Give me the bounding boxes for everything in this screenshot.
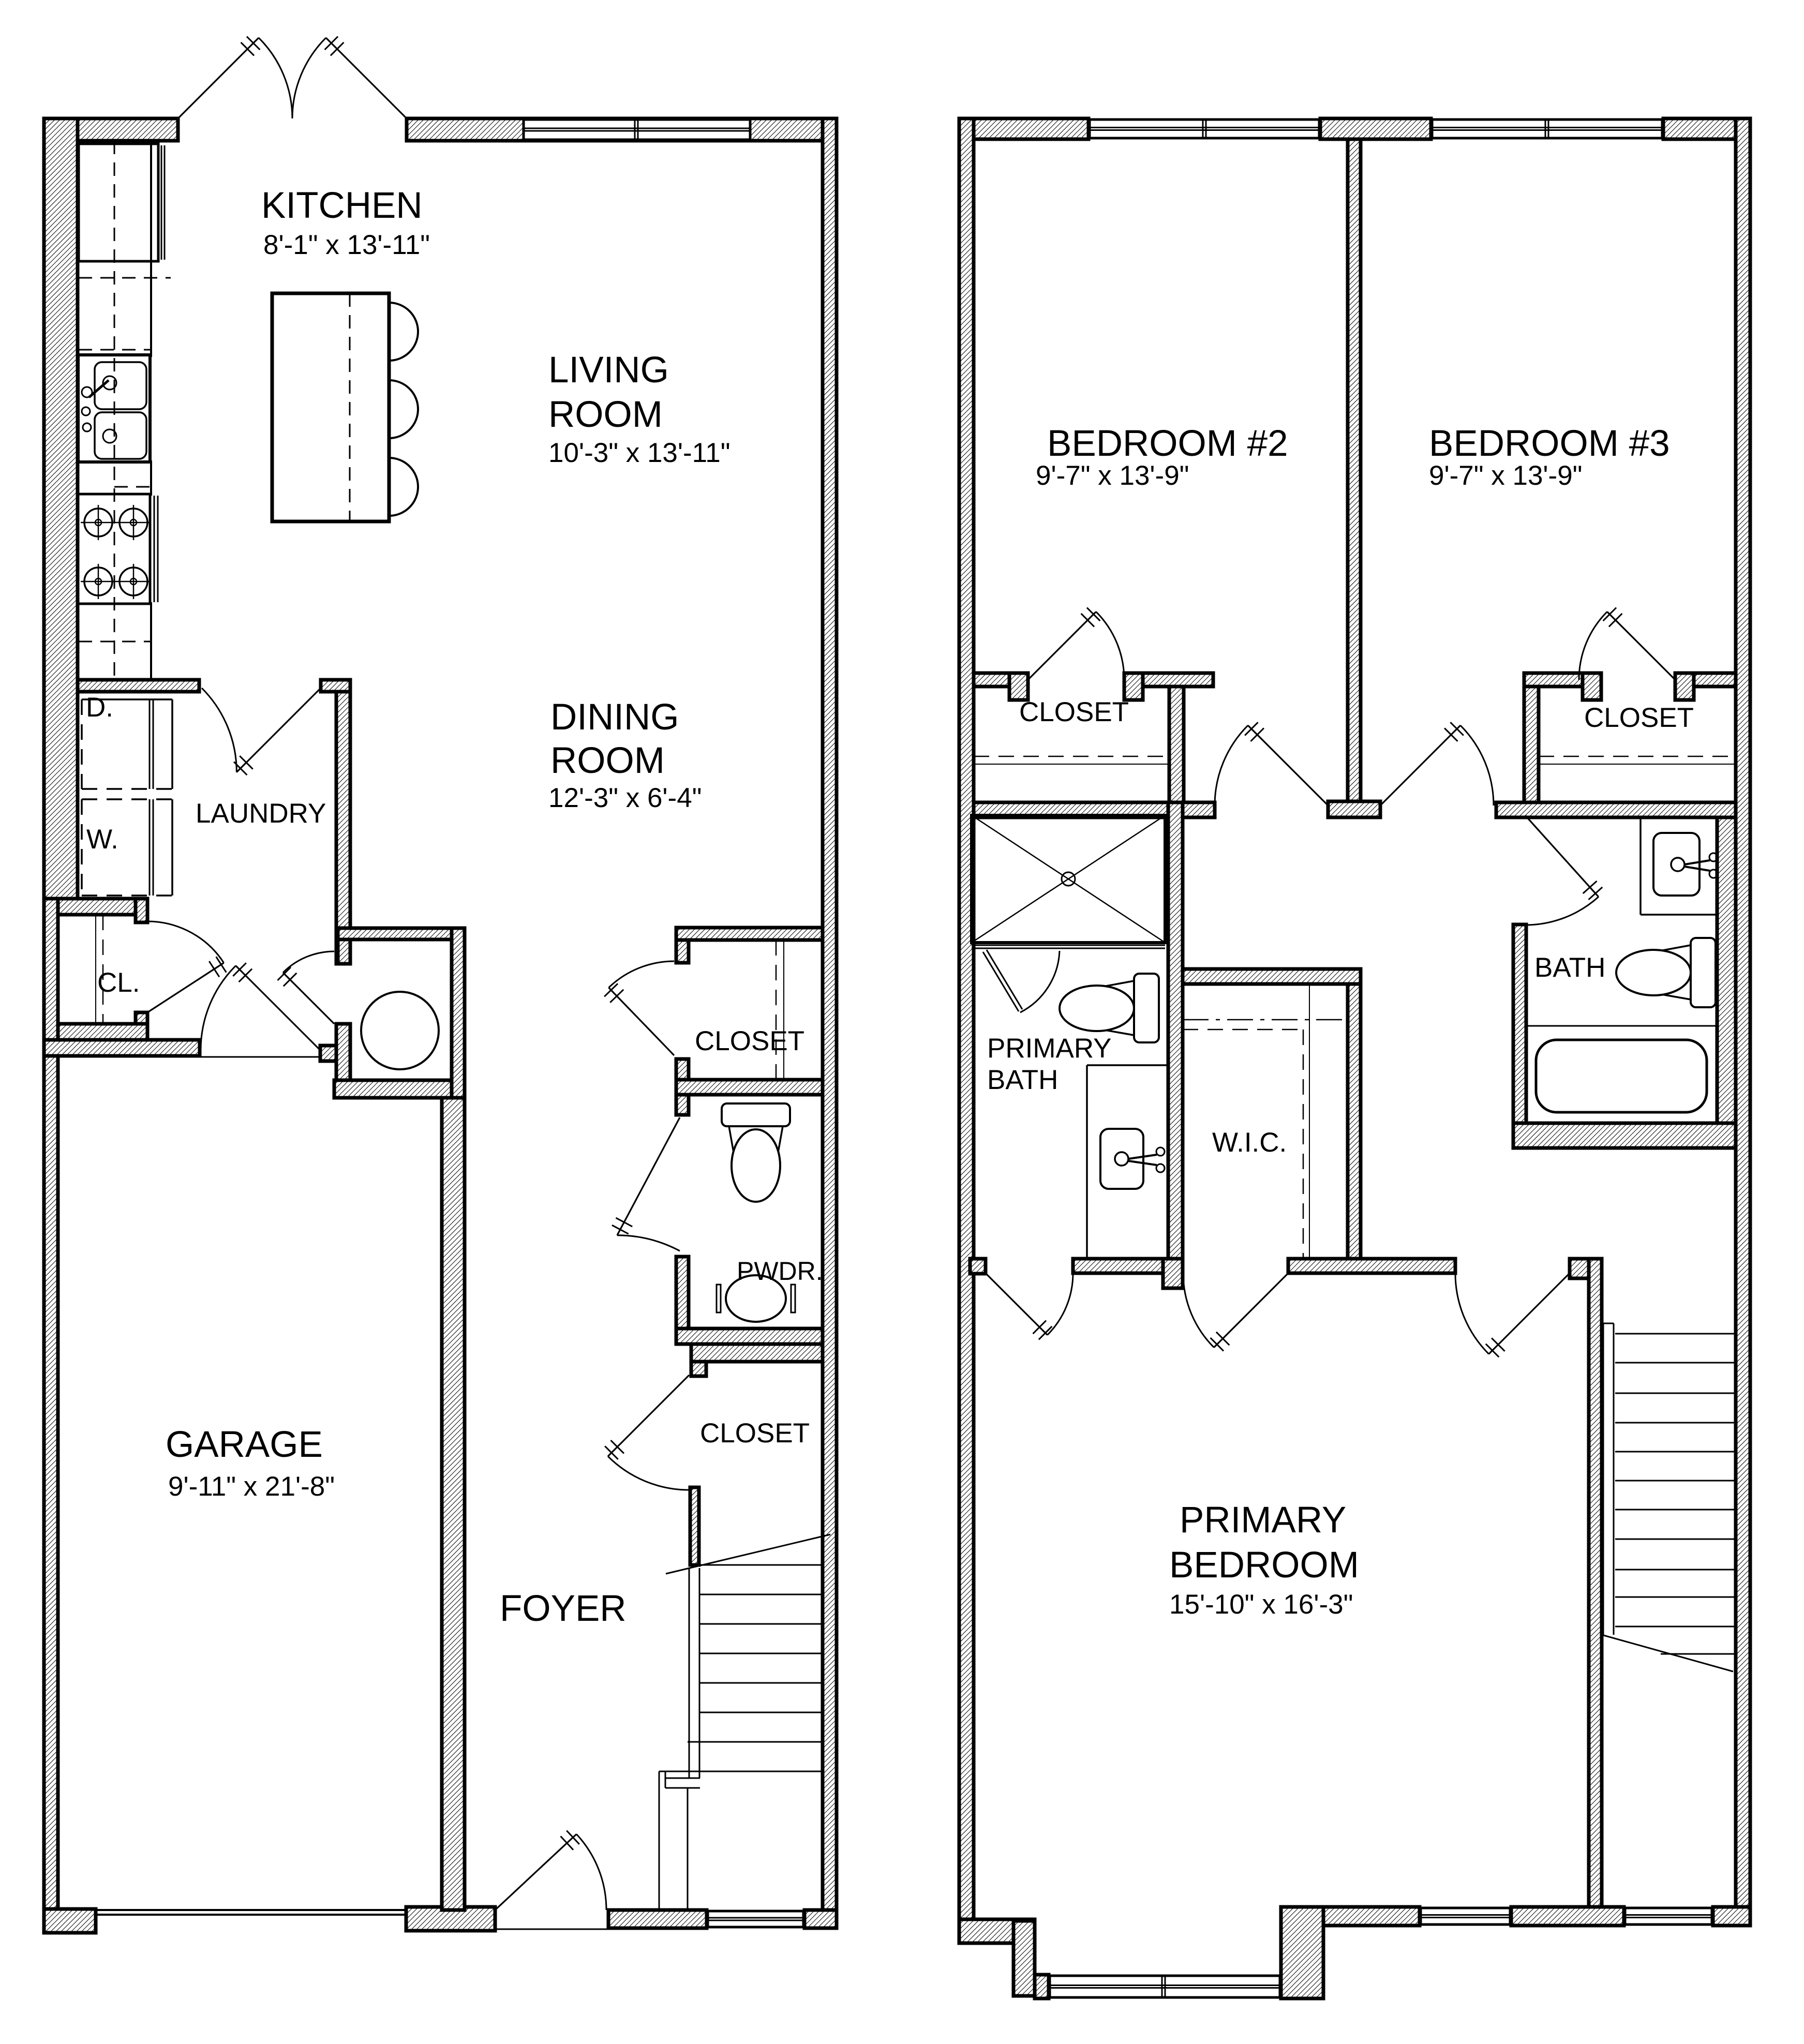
svg-text:ROOM: ROOM [550,740,665,781]
svg-text:9'-11" x 21'-8": 9'-11" x 21'-8" [168,1471,335,1502]
svg-text:PRIMARY: PRIMARY [987,1033,1112,1064]
svg-text:9'-7" x 13'-9": 9'-7" x 13'-9" [1036,460,1189,491]
svg-text:ROOM: ROOM [548,394,663,435]
svg-text:CLOSET: CLOSET [1584,703,1694,733]
svg-text:W.: W. [86,824,118,855]
svg-text:FOYER: FOYER [500,1588,627,1629]
svg-text:CLOSET: CLOSET [1019,697,1129,727]
svg-text:PRIMARY: PRIMARY [1180,1500,1346,1541]
svg-text:10'-3" x 13'-11": 10'-3" x 13'-11" [548,438,730,468]
svg-text:CLOSET: CLOSET [700,1418,810,1449]
svg-text:BEDROOM: BEDROOM [1169,1545,1359,1586]
svg-text:9'-7" x 13'-9": 9'-7" x 13'-9" [1429,460,1583,491]
svg-text:KITCHEN: KITCHEN [261,185,423,226]
svg-text:PWDR.: PWDR. [737,1257,823,1286]
svg-text:DINING: DINING [550,697,679,738]
svg-text:CLOSET: CLOSET [695,1026,804,1056]
svg-text:W.I.C.: W.I.C. [1212,1127,1287,1158]
svg-text:GARAGE: GARAGE [166,1424,323,1465]
svg-text:CL.: CL. [97,967,140,998]
svg-text:D.: D. [86,692,113,723]
svg-text:8'-1" x 13'-11": 8'-1" x 13'-11" [263,230,430,260]
svg-text:BATH: BATH [1534,952,1605,983]
svg-text:15'-10" x 16'-3": 15'-10" x 16'-3" [1169,1589,1353,1620]
svg-text:BEDROOM #3: BEDROOM #3 [1429,423,1670,464]
svg-text:LIVING: LIVING [548,350,669,391]
svg-text:12'-3" x 6'-4": 12'-3" x 6'-4" [548,783,702,813]
svg-text:BATH: BATH [987,1065,1058,1095]
svg-text:LAUNDRY: LAUNDRY [196,798,326,829]
svg-text:BEDROOM #2: BEDROOM #2 [1047,423,1288,464]
